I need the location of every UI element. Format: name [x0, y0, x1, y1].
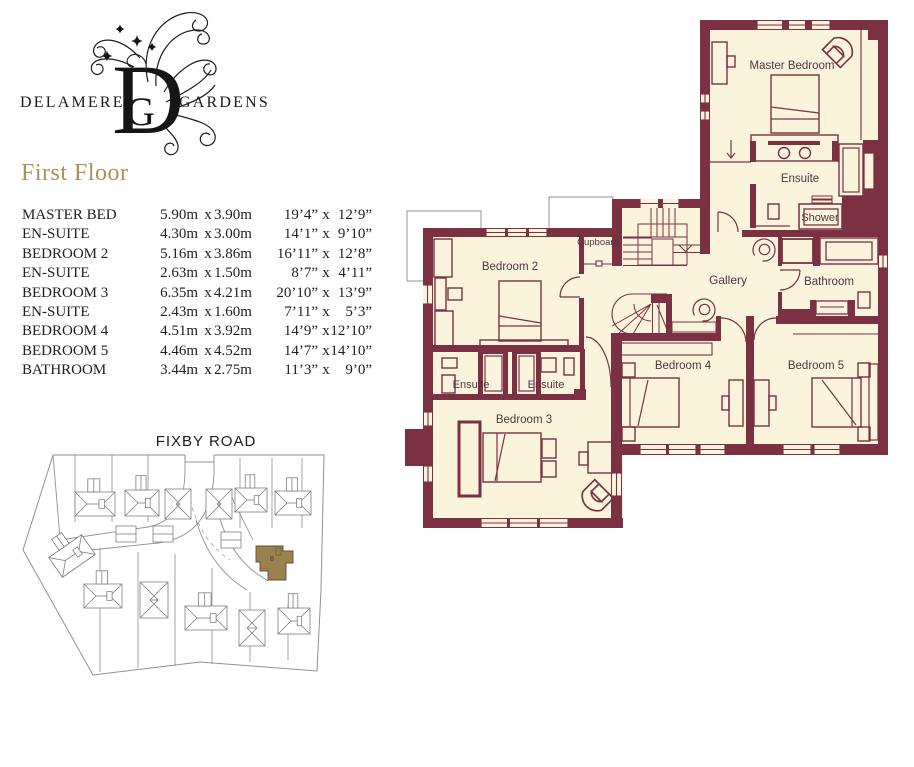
svg-text:GARDENS: GARDENS: [179, 94, 270, 111]
svg-text:Bedroom 2: Bedroom 2: [482, 261, 538, 273]
svg-text:8: 8: [270, 556, 274, 563]
svg-text:Bedroom 3: Bedroom 3: [496, 414, 552, 426]
svg-text:Bedroom 5: Bedroom 5: [788, 360, 844, 372]
svg-text:Master Bedroom: Master Bedroom: [749, 60, 834, 72]
svg-text:Ensuite: Ensuite: [781, 173, 819, 185]
svg-text:DELAMERE: DELAMERE: [20, 94, 125, 111]
svg-text:Gallery: Gallery: [709, 273, 747, 287]
svg-text:Ensuite: Ensuite: [528, 379, 565, 391]
svg-text:Bathroom: Bathroom: [804, 276, 854, 288]
svg-text:FIXBY ROAD: FIXBY ROAD: [156, 433, 257, 450]
svg-text:Shower: Shower: [801, 212, 839, 224]
svg-text:Ensuite: Ensuite: [453, 379, 490, 391]
svg-text:Cupboard: Cupboard: [577, 237, 619, 248]
svg-text:G: G: [126, 89, 155, 134]
svg-text:Bedroom 4: Bedroom 4: [655, 360, 712, 372]
